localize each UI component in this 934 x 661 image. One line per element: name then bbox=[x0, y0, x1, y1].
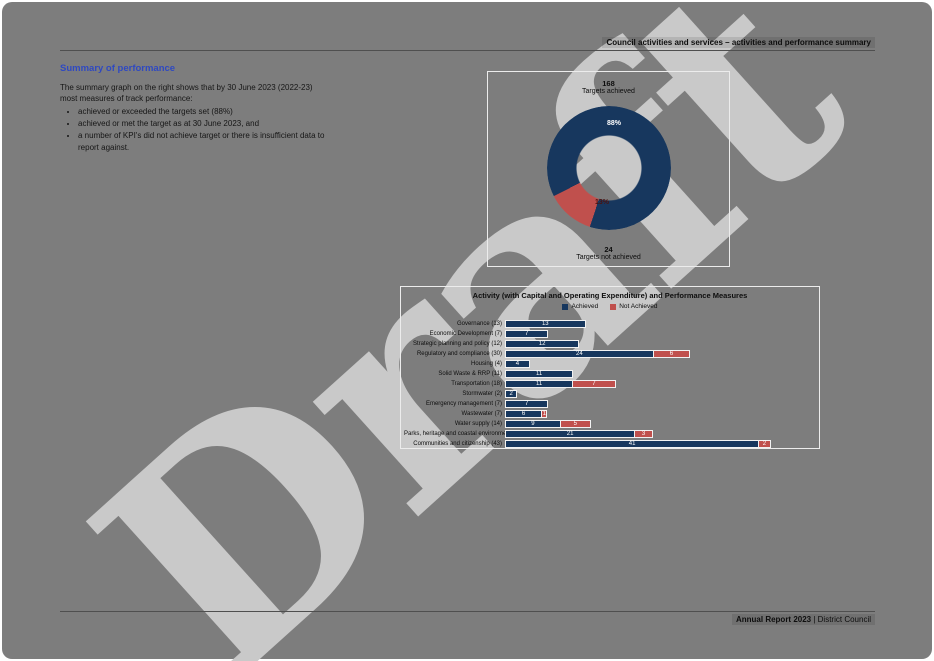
not-achieved-percent-label: 13% bbox=[580, 199, 624, 206]
bar-row: Water supply (14)95 bbox=[404, 419, 814, 429]
bar-segment-achieved: 11 bbox=[505, 370, 573, 378]
bar-segment-achieved: 41 bbox=[505, 440, 759, 448]
donut-top-caption: 168 Targets achieved bbox=[488, 79, 729, 95]
bar-row: Economic Development (7)7 bbox=[404, 329, 814, 339]
bullet-item: achieved or exceeded the targets set (88… bbox=[78, 106, 330, 117]
bullet-item: a number of KPI's did not achieve target… bbox=[78, 130, 330, 152]
bar-category-label: Strategic planning and policy (12) bbox=[404, 341, 505, 347]
targets-not-achieved-count: 24 bbox=[488, 245, 729, 254]
bar-segment-not-achieved: 2 bbox=[758, 440, 770, 448]
targets-achieved-count: 168 bbox=[488, 79, 729, 88]
bar-track: 4 bbox=[505, 359, 814, 369]
bar-row: Wastewater (7)61 bbox=[404, 409, 814, 419]
bar-category-label: Governance (13) bbox=[404, 321, 505, 327]
achieved-percent-label: 88% bbox=[592, 120, 636, 127]
bar-track: 61 bbox=[505, 409, 814, 419]
intro-paragraph: The summary graph on the right shows tha… bbox=[60, 82, 328, 104]
bar-row: Housing (4)4 bbox=[404, 359, 814, 369]
bar-segment-achieved: 21 bbox=[505, 430, 635, 438]
bar-row: Parks, heritage and coastal environment … bbox=[404, 429, 814, 439]
legend-label: Not Achieved bbox=[619, 303, 657, 310]
targets-not-achieved-label: Targets not achieved bbox=[488, 254, 729, 261]
bar-track: 412 bbox=[505, 439, 814, 449]
bar-segment-achieved: 12 bbox=[505, 340, 579, 348]
page-header: Council activities and services – activi… bbox=[602, 37, 875, 48]
bar-row: Communities and citizenship (43)412 bbox=[404, 439, 814, 449]
bar-category-label: Transportation (18) bbox=[404, 381, 505, 387]
legend-label: Achieved bbox=[571, 303, 598, 310]
bar-category-label: Water supply (14) bbox=[404, 421, 505, 427]
donut-chart-panel: 168 Targets achieved 88% 13% 24 Targets … bbox=[487, 71, 730, 267]
bar-segment-not-achieved: 6 bbox=[653, 350, 690, 358]
bar-segment-achieved: 7 bbox=[505, 400, 548, 408]
bar-track: 13 bbox=[505, 319, 814, 329]
bar-row: Strategic planning and policy (12)12 bbox=[404, 339, 814, 349]
bar-category-label: Economic Development (7) bbox=[404, 331, 505, 337]
bar-category-label: Communities and citizenship (43) bbox=[404, 441, 505, 447]
bar-track: 213 bbox=[505, 429, 814, 439]
bar-track: 7 bbox=[505, 329, 814, 339]
bar-row: Stormwater (2)2 bbox=[404, 389, 814, 399]
bar-track: 12 bbox=[505, 339, 814, 349]
achieved-swatch-icon bbox=[562, 304, 568, 310]
bar-chart-legend: Achieved Not Achieved bbox=[401, 303, 819, 310]
donut-bottom-caption: 24 Targets not achieved bbox=[488, 245, 729, 261]
bar-row: Solid Waste & RRP (11)11 bbox=[404, 369, 814, 379]
bar-track: 7 bbox=[505, 399, 814, 409]
report-page: Draft Council activities and services – … bbox=[0, 0, 934, 661]
bar-category-label: Stormwater (2) bbox=[404, 391, 505, 397]
bar-category-label: Housing (4) bbox=[404, 361, 505, 367]
page-content: Council activities and services – activi… bbox=[0, 0, 934, 661]
bar-track: 117 bbox=[505, 379, 814, 389]
bar-segment-achieved: 4 bbox=[505, 360, 530, 368]
header-rule bbox=[60, 50, 875, 51]
bar-rows: Governance (13)13Economic Development (7… bbox=[404, 319, 814, 449]
targets-achieved-label: Targets achieved bbox=[488, 88, 729, 95]
bar-segment-not-achieved: 7 bbox=[572, 380, 615, 388]
bar-segment-achieved: 24 bbox=[505, 350, 654, 358]
bar-segment-achieved: 9 bbox=[505, 420, 561, 428]
bar-segment-achieved: 6 bbox=[505, 410, 542, 418]
bar-track: 11 bbox=[505, 369, 814, 379]
bar-segment-not-achieved: 1 bbox=[541, 410, 547, 418]
bar-segment-achieved: 11 bbox=[505, 380, 573, 388]
footer-council-name: | District Council bbox=[811, 615, 871, 624]
bar-row: Transportation (18)117 bbox=[404, 379, 814, 389]
bar-segment-achieved: 13 bbox=[505, 320, 586, 328]
bar-segment-not-achieved: 5 bbox=[560, 420, 591, 428]
legend-item-not-achieved: Not Achieved bbox=[610, 303, 657, 310]
bullet-item: achieved or met the target as at 30 June… bbox=[78, 118, 330, 129]
bar-track: 95 bbox=[505, 419, 814, 429]
legend-item-achieved: Achieved bbox=[562, 303, 598, 310]
footer-report-title: Annual Report 2023 bbox=[736, 615, 811, 624]
bar-segment-not-achieved: 3 bbox=[634, 430, 653, 438]
bar-row: Emergency management (7)7 bbox=[404, 399, 814, 409]
bar-category-label: Solid Waste & RRP (11) bbox=[404, 371, 505, 377]
summary-bullet-list: achieved or exceeded the targets set (88… bbox=[64, 106, 330, 154]
bar-row: Regulatory and compliance (30)246 bbox=[404, 349, 814, 359]
bar-row: Governance (13)13 bbox=[404, 319, 814, 329]
bar-chart-panel: Activity (with Capital and Operating Exp… bbox=[400, 286, 820, 449]
bar-track: 246 bbox=[505, 349, 814, 359]
bar-chart-title: Activity (with Capital and Operating Exp… bbox=[401, 291, 819, 300]
bar-track: 2 bbox=[505, 389, 814, 399]
bar-category-label: Wastewater (7) bbox=[404, 411, 505, 417]
page-footer: Annual Report 2023 | District Council bbox=[732, 614, 875, 625]
bar-category-label: Regulatory and compliance (30) bbox=[404, 351, 505, 357]
footer-rule bbox=[60, 611, 875, 612]
bar-segment-achieved: 7 bbox=[505, 330, 548, 338]
bar-segment-achieved: 2 bbox=[505, 390, 517, 398]
bar-category-label: Parks, heritage and coastal environment … bbox=[404, 431, 505, 437]
section-heading: Summary of performance bbox=[60, 63, 175, 74]
bar-category-label: Emergency management (7) bbox=[404, 401, 505, 407]
not-achieved-swatch-icon bbox=[610, 304, 616, 310]
